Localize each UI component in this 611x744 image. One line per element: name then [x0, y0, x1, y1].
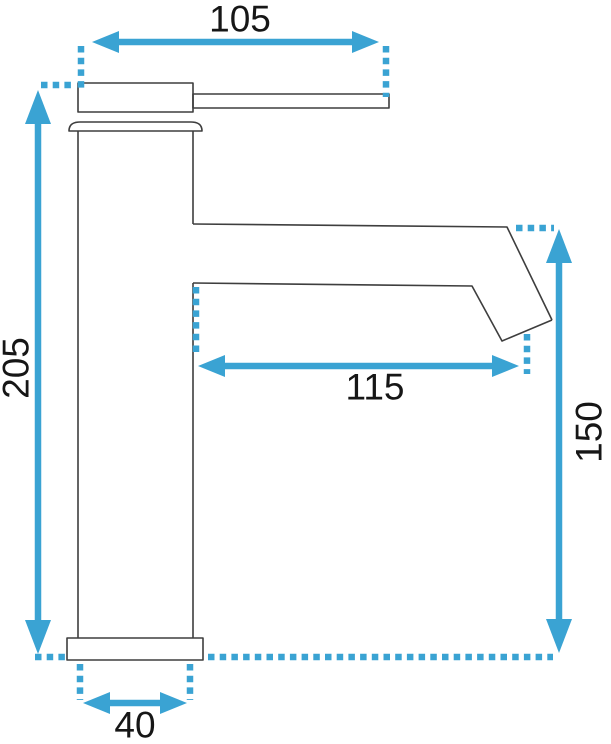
dimension-label-spout-reach: 115 [346, 367, 405, 408]
dimension-spout-height: 150 [208, 228, 610, 657]
arrowhead-down-icon [546, 619, 572, 653]
faucet-spout [193, 224, 552, 341]
arrowhead-left-icon [198, 355, 225, 377]
drawing-svg: 105 205 115 150 [0, 0, 611, 744]
arrowhead-right-icon [160, 692, 187, 714]
dimension-label-base-width: 40 [114, 705, 155, 744]
faucet-lever [193, 94, 389, 108]
faucet-handle-cap [78, 83, 193, 112]
arrowhead-down-icon [25, 620, 51, 654]
dimension-base-width: 40 [80, 664, 190, 744]
arrowhead-right-icon [492, 355, 519, 377]
arrowhead-up-icon [25, 90, 51, 124]
arrowhead-left-icon [92, 31, 119, 53]
dimension-total-height: 205 [0, 85, 76, 657]
arrowhead-left-icon [83, 692, 110, 714]
faucet-dimension-drawing: 105 205 115 150 [0, 0, 611, 744]
dimension-label-spout-height: 150 [569, 401, 610, 463]
faucet-outline [67, 83, 552, 660]
faucet-collar [69, 122, 202, 131]
faucet-base-plate [67, 638, 203, 660]
dimension-spout-reach: 115 [196, 287, 527, 408]
faucet-body-column [78, 131, 193, 638]
arrowhead-right-icon [352, 31, 379, 53]
arrowhead-up-icon [546, 229, 572, 263]
dimension-label-total-height: 205 [0, 337, 37, 399]
dimension-label-top-width: 105 [209, 0, 271, 40]
